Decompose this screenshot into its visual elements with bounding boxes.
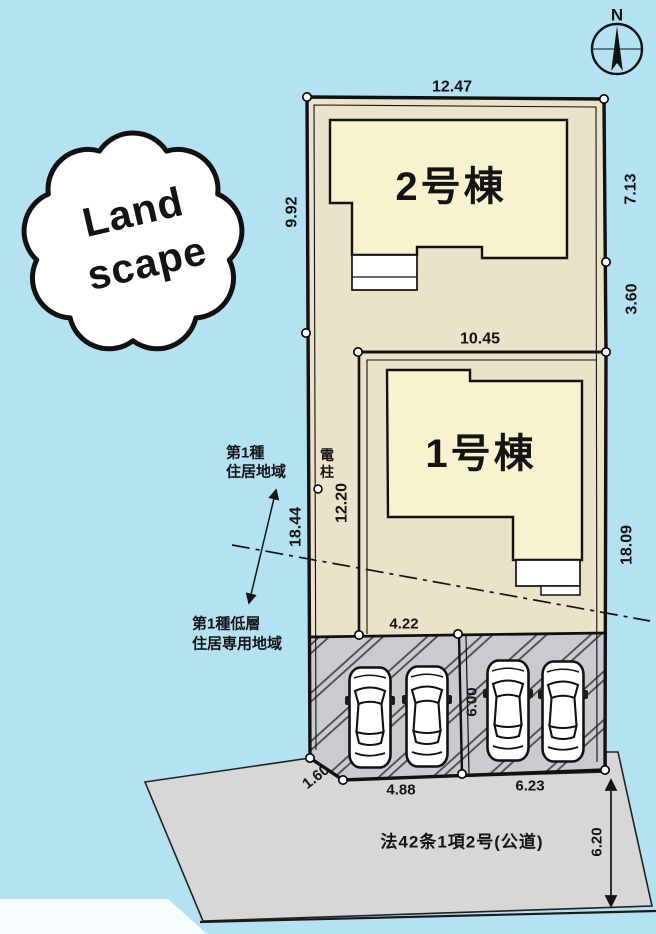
dim-parcel1-top: 10.45 [460, 331, 500, 348]
site-plan-page: 2号棟 1号棟 電 柱 12.47 9.92 7.13 3.60 10.45 1… [0, 0, 656, 934]
zone1-label-line1: 第1種 [226, 444, 264, 462]
zone2-label-line1: 第1種低層 [192, 615, 260, 633]
utility-pole-label-char1: 電 [320, 447, 334, 463]
vertex-dot [602, 348, 610, 356]
dim-road-width: 6.20 [589, 827, 606, 856]
dim-right-mid: 3.60 [624, 283, 641, 314]
vertex-dot [302, 329, 310, 337]
building-1-porch-step [541, 586, 580, 595]
vertex-dot [600, 95, 608, 103]
vertex-dot [303, 93, 311, 101]
dim-parking-left-width: 4.88 [386, 782, 415, 799]
building-2-label: 2号棟 [395, 165, 506, 209]
building-1-porch [516, 560, 580, 586]
zone2-label-line2: 住居専用地域 [192, 635, 282, 653]
vertex-dot [354, 348, 362, 356]
vertex-dot [454, 630, 462, 638]
vertex-dot [355, 631, 363, 639]
car-topview [483, 661, 533, 761]
stamp-flower-outline [24, 133, 242, 349]
dim-left-upper: 9.92 [284, 196, 301, 227]
dim-parcel1-bottom: 4.22 [389, 616, 418, 633]
utility-pole-label-char2: 柱 [320, 464, 334, 480]
car-topview [345, 668, 395, 768]
vertex-dot [458, 770, 466, 778]
dim-left-lower: 18.44 [288, 507, 305, 547]
dim-right-upper: 7.13 [623, 173, 640, 204]
zone1-label-line2: 住居地域 [226, 463, 286, 481]
dim-top-width: 12.47 [432, 79, 472, 96]
road-label: 法42条1項2号(公道) [380, 832, 543, 852]
compass-north-label: N [611, 6, 623, 25]
dim-parking-right-width: 6.23 [515, 778, 544, 795]
site-plan-canvas: 2号棟 1号棟 電 柱 12.47 9.92 7.13 3.60 10.45 1… [0, 0, 656, 934]
dim-right-lower: 18.09 [619, 525, 636, 565]
utility-pole-symbol [314, 485, 322, 493]
vertex-dot [306, 754, 314, 762]
landscape-stamp: Land scape [24, 133, 242, 349]
vertex-dot [602, 258, 610, 266]
car-topview [538, 662, 588, 762]
dim-parking-depth: 6.00 [464, 687, 481, 716]
building-1-label: 1号棟 [425, 432, 536, 476]
dim-parcel1-left: 12.20 [334, 483, 351, 523]
vertex-dot [339, 776, 347, 784]
building-2-porch [352, 255, 417, 290]
vertex-dot [601, 766, 609, 774]
car-topview [402, 667, 452, 767]
